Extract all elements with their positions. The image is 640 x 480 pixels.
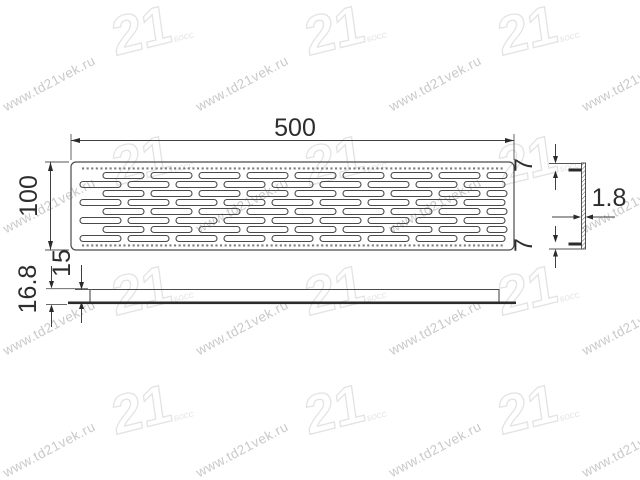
vent-slot: [439, 227, 480, 233]
vent-slot: [416, 236, 457, 242]
perforation-dot: [413, 244, 415, 246]
vent-slot: [103, 209, 144, 215]
perforation-dot: [482, 244, 484, 246]
vent-slot: [247, 173, 288, 179]
dimension-height: 100: [15, 162, 69, 250]
vent-slot: [224, 200, 265, 206]
perforation-dot: [344, 244, 346, 246]
perforation-dot: [335, 244, 337, 246]
vent-slot: [368, 200, 409, 206]
front-view: 16.8 15: [14, 249, 516, 327]
vent-slot: [391, 173, 432, 179]
perforation-dot: [215, 167, 217, 169]
vent-slot: [343, 209, 384, 215]
perforation-dot: [234, 244, 236, 246]
perforation-dot: [179, 167, 181, 169]
vent-slot: [80, 236, 121, 242]
perforation-dot: [243, 244, 245, 246]
vent-slot: [247, 191, 288, 197]
perforation-dot: [261, 167, 263, 169]
vent-slot: [320, 236, 361, 242]
perforation-dot: [422, 244, 424, 246]
vent-slot: [176, 182, 217, 188]
perforation-dot: [372, 167, 374, 169]
perforation-dot: [266, 244, 268, 246]
arrow: [574, 215, 582, 220]
arrow: [49, 305, 54, 313]
perforation-dot: [376, 244, 378, 246]
dimension-thickness-label: 1.8: [592, 184, 627, 212]
perforation-dot: [317, 244, 319, 246]
perforation-dot: [266, 167, 268, 169]
arrow: [505, 138, 514, 143]
vent-slot: [439, 209, 480, 215]
perforation-dot: [432, 167, 434, 169]
perforation-dot: [151, 167, 153, 169]
perforation-dot: [142, 244, 144, 246]
vent-slot: [199, 209, 240, 215]
perforation-dot: [119, 167, 121, 169]
perforation-dot: [307, 244, 309, 246]
vent-slot: [439, 173, 480, 179]
perforation-dot: [96, 167, 98, 169]
perforation-dot: [390, 244, 392, 246]
perforation-dot: [381, 244, 383, 246]
perforation-dot: [386, 167, 388, 169]
perforation-dot: [390, 167, 392, 169]
perforation-dot: [413, 167, 415, 169]
arrow: [49, 281, 54, 289]
vent-slot: [416, 218, 457, 224]
perforation-dot: [395, 244, 397, 246]
perforation-dot: [114, 167, 116, 169]
perforation-dot: [229, 244, 231, 246]
perforation-dot: [501, 244, 503, 246]
vent-slot: [151, 209, 192, 215]
perforation-dot: [436, 167, 438, 169]
perforation-dot: [501, 167, 503, 169]
perforation-dot: [349, 167, 351, 169]
perforation-dot: [303, 167, 305, 169]
perforation-dot: [445, 167, 447, 169]
perforation-dot: [137, 244, 139, 246]
vent-slot: [128, 218, 169, 224]
perforation-dot: [188, 167, 190, 169]
perforation-dot: [482, 167, 484, 169]
vent-slot: [151, 227, 192, 233]
perforation-dot: [464, 167, 466, 169]
plan-view: [71, 162, 514, 250]
perforation-dot: [211, 244, 213, 246]
perforation-dot: [312, 244, 314, 246]
vent-slot: [224, 236, 265, 242]
perforation-dot: [183, 167, 185, 169]
perforation-dot: [303, 244, 305, 246]
arrow: [586, 215, 594, 220]
vent-slot: [343, 227, 384, 233]
perforation-dot: [376, 167, 378, 169]
perforation-dot: [312, 167, 314, 169]
perforation-dot: [363, 244, 365, 246]
dimension-flange-bottom-label: 7: [510, 238, 538, 252]
perforation-dot: [487, 244, 489, 246]
perforation-dot: [409, 167, 411, 169]
perforation-dot: [344, 167, 346, 169]
perforation-dot: [422, 167, 424, 169]
perforation-dot: [358, 244, 360, 246]
perforation-dot: [238, 167, 240, 169]
perforation-dot: [298, 244, 300, 246]
perforation-dot: [289, 244, 291, 246]
perforation-dot: [441, 167, 443, 169]
perforation-dot: [146, 244, 148, 246]
perforation-dot: [326, 244, 328, 246]
perforation-dot: [284, 244, 286, 246]
vent-slot: [272, 182, 313, 188]
perforation-dot: [169, 167, 171, 169]
perforation-dot: [363, 167, 365, 169]
perforation-dot: [183, 244, 185, 246]
perforation-dot: [174, 244, 176, 246]
perforation-dot: [372, 244, 374, 246]
perforation-dots-layer: [82, 167, 503, 246]
arrow: [553, 156, 558, 164]
perforation-dot: [491, 244, 493, 246]
perforation-dot: [133, 167, 135, 169]
perforation-dot: [468, 244, 470, 246]
perforation-dot: [478, 167, 480, 169]
section-plate: [582, 163, 586, 249]
perforation-dot: [100, 167, 102, 169]
arrow: [48, 162, 53, 171]
perforation-dot: [197, 167, 199, 169]
perforation-dot: [100, 244, 102, 246]
vent-slot: [343, 173, 384, 179]
perforation-dot: [496, 244, 498, 246]
perforation-dot: [353, 167, 355, 169]
vent-slot: [247, 227, 288, 233]
perforation-dot: [252, 244, 254, 246]
vent-slot: [103, 173, 144, 179]
perforation-dot: [82, 167, 84, 169]
section-flange-bottom: [569, 243, 582, 246]
perforation-dot: [289, 167, 291, 169]
technical-drawing: 500 100 7: [0, 0, 640, 480]
perforation-dot: [105, 167, 107, 169]
perforation-dot: [151, 244, 153, 246]
vent-slot: [295, 209, 336, 215]
perforation-dot: [307, 167, 309, 169]
arrow: [553, 249, 558, 257]
perforation-dot: [271, 244, 273, 246]
perforation-dot: [367, 167, 369, 169]
vent-slot: [487, 209, 507, 215]
perforation-dot: [215, 244, 217, 246]
vent-slot: [128, 200, 169, 206]
vent-slot: [272, 218, 313, 224]
perforation-dot: [257, 167, 259, 169]
perforation-dot: [349, 244, 351, 246]
perforation-dot: [271, 167, 273, 169]
perforation-dot: [298, 167, 300, 169]
vent-slot: [151, 191, 192, 197]
perforation-dot: [252, 167, 254, 169]
perforation-dot: [206, 244, 208, 246]
perforation-dot: [284, 167, 286, 169]
vent-slot: [464, 236, 505, 242]
vent-slot: [247, 209, 288, 215]
vent-slot: [416, 182, 457, 188]
perforation-dot: [445, 244, 447, 246]
perforation-dot: [280, 244, 282, 246]
perforation-dot: [110, 167, 112, 169]
perforation-dot: [133, 244, 135, 246]
perforation-dot: [427, 244, 429, 246]
vent-slot: [487, 191, 507, 197]
perforation-dot: [165, 167, 167, 169]
perforation-dot: [395, 167, 397, 169]
perforation-dot: [294, 167, 296, 169]
perforation-dot: [450, 167, 452, 169]
vent-slot: [128, 182, 169, 188]
arrow: [553, 235, 558, 243]
vent-slot: [464, 218, 505, 224]
perforation-dot: [473, 167, 475, 169]
vent-slot: [176, 200, 217, 206]
perforation-dot: [441, 244, 443, 246]
perforation-dot: [455, 167, 457, 169]
dimension-flange-top-label: 7: [510, 158, 538, 172]
vent-slot: [320, 182, 361, 188]
vent-slot: [391, 227, 432, 233]
perforation-dot: [381, 167, 383, 169]
vent-slot: [295, 173, 336, 179]
perforation-dot: [105, 244, 107, 246]
face-plate-edge: [68, 302, 516, 305]
perforation-dot: [432, 244, 434, 246]
perforation-dot: [321, 167, 323, 169]
vent-slot: [368, 182, 409, 188]
vent-slot: [464, 182, 505, 188]
perforation-dot: [427, 167, 429, 169]
perforation-dot: [243, 167, 245, 169]
vent-slot: [80, 200, 121, 206]
dimension-width-label: 500: [274, 114, 316, 142]
vent-slot: [272, 200, 313, 206]
perforation-dot: [202, 244, 204, 246]
vent-slot: [320, 200, 361, 206]
perforation-dot: [409, 244, 411, 246]
dimension-mount-depth-label: 15: [48, 249, 76, 277]
perforation-dot: [192, 167, 194, 169]
vent-slot: [416, 200, 457, 206]
perforation-dot: [160, 167, 162, 169]
perforation-dot: [156, 167, 158, 169]
perforation-dot: [165, 244, 167, 246]
perforation-dot: [468, 167, 470, 169]
perforation-dot: [367, 244, 369, 246]
section-flange-top: [569, 169, 582, 172]
perforation-dot: [404, 167, 406, 169]
perforation-dot: [404, 244, 406, 246]
dimension-flange-bottom: 7: [510, 226, 586, 268]
perforation-dot: [174, 167, 176, 169]
perforation-dot: [211, 167, 213, 169]
vent-slot: [128, 236, 169, 242]
perforation-dot: [225, 167, 227, 169]
perforation-dot: [455, 244, 457, 246]
perforation-dot: [496, 167, 498, 169]
perforation-dot: [156, 244, 158, 246]
vent-slot: [80, 182, 121, 188]
perforation-dot: [280, 167, 282, 169]
perforation-dot: [358, 167, 360, 169]
vent-slot: [199, 227, 240, 233]
vent-slot: [151, 173, 192, 179]
perforation-dot: [128, 167, 130, 169]
perforation-dot: [399, 167, 401, 169]
perforation-dot: [220, 244, 222, 246]
vent-slot: [80, 218, 121, 224]
perforation-dot: [123, 244, 125, 246]
perforation-dot: [340, 167, 342, 169]
dimension-mount-depth: 15: [48, 249, 92, 323]
perforation-dot: [96, 244, 98, 246]
dimension-total-depth-label: 16.8: [14, 265, 42, 314]
perforation-dot: [436, 244, 438, 246]
perforation-dot: [179, 244, 181, 246]
perforation-dot: [137, 167, 139, 169]
perforation-dot: [335, 167, 337, 169]
section-view: 7 1.8 7: [510, 144, 626, 268]
perforation-dot: [294, 244, 296, 246]
perforation-dot: [464, 244, 466, 246]
perforation-dot: [353, 244, 355, 246]
perforation-dot: [123, 167, 125, 169]
vent-slot: [272, 236, 313, 242]
perforation-dot: [386, 244, 388, 246]
perforation-dot: [487, 167, 489, 169]
perforation-dot: [257, 244, 259, 246]
perforation-dot: [91, 167, 93, 169]
arrow: [48, 241, 53, 250]
dimension-height-label: 100: [15, 175, 43, 217]
perforation-dot: [418, 244, 420, 246]
perforation-dot: [87, 244, 89, 246]
perforation-dot: [220, 167, 222, 169]
perforation-dot: [317, 167, 319, 169]
vent-slot: [439, 191, 480, 197]
dimension-flange-top: 7: [510, 144, 581, 190]
perforation-dot: [119, 244, 121, 246]
perforation-dot: [238, 244, 240, 246]
perforation-dot: [160, 244, 162, 246]
perforation-dot: [261, 244, 263, 246]
perforation-dot: [248, 167, 250, 169]
perforation-dot: [197, 244, 199, 246]
perforation-dot: [459, 244, 461, 246]
vent-slot: [368, 236, 409, 242]
arrow: [71, 138, 80, 143]
perforation-dot: [91, 244, 93, 246]
vent-slot: [224, 182, 265, 188]
perforation-dot: [229, 167, 231, 169]
perforation-dot: [192, 244, 194, 246]
perforation-dot: [114, 244, 116, 246]
arrow: [553, 171, 558, 179]
perforation-dot: [248, 244, 250, 246]
perforation-dot: [206, 167, 208, 169]
vent-slot: [199, 173, 240, 179]
vent-slot: [487, 227, 507, 233]
perforation-dot: [473, 244, 475, 246]
vent-slot: [487, 173, 507, 179]
drawing-canvas: www.td21vek.ruwww.td21vek.ruwww.td21vek.…: [0, 0, 640, 480]
vent-slot: [103, 227, 144, 233]
perforation-dot: [478, 244, 480, 246]
perforation-dot: [225, 244, 227, 246]
vent-slot: [464, 200, 505, 206]
perforation-dot: [146, 167, 148, 169]
perforation-dot: [399, 244, 401, 246]
vent-slot: [224, 218, 265, 224]
perforation-dot: [128, 244, 130, 246]
mount-body-outline: [90, 290, 499, 302]
perforation-dot: [234, 167, 236, 169]
vent-slot: [391, 209, 432, 215]
perforation-dot: [330, 244, 332, 246]
dimension-width: 500: [71, 114, 514, 160]
perforation-dot: [275, 244, 277, 246]
perforation-dot: [202, 167, 204, 169]
vent-slot: [343, 191, 384, 197]
vent-slot: [391, 191, 432, 197]
vent-slot: [368, 218, 409, 224]
perforation-dot: [340, 244, 342, 246]
vent-slot: [176, 218, 217, 224]
perforation-dot: [188, 244, 190, 246]
perforation-dot: [82, 244, 84, 246]
perforation-dot: [450, 244, 452, 246]
perforation-dot: [275, 167, 277, 169]
perforation-dot: [87, 167, 89, 169]
perforation-dot: [321, 244, 323, 246]
vent-slot: [103, 191, 144, 197]
vent-slot: [176, 236, 217, 242]
slots-layer: [80, 173, 507, 242]
perforation-dot: [330, 167, 332, 169]
perforation-dot: [491, 167, 493, 169]
vent-slot: [295, 191, 336, 197]
vent-slot: [320, 218, 361, 224]
perforation-dot: [142, 167, 144, 169]
dimension-thickness: 1.8: [552, 184, 626, 220]
perforation-dot: [459, 167, 461, 169]
perforation-dot: [169, 244, 171, 246]
perforation-dot: [418, 167, 420, 169]
perforation-dot: [110, 244, 112, 246]
vent-slot: [295, 227, 336, 233]
vent-slot: [199, 191, 240, 197]
perforation-dot: [326, 167, 328, 169]
